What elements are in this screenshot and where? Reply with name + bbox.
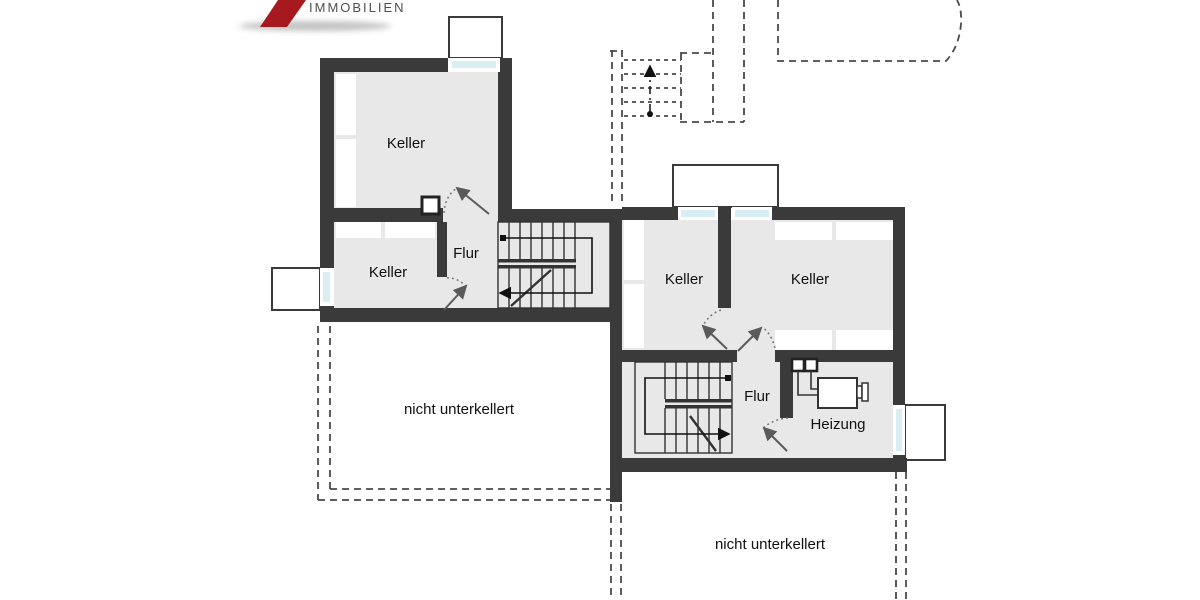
- room-label-keller-mid: Keller: [665, 271, 703, 288]
- window-east-icon: [893, 405, 905, 455]
- room-label-keller-east: Keller: [791, 271, 829, 288]
- exterior-staircase-dashed-icon: [624, 60, 681, 117]
- room-label-heizung: Heizung: [810, 416, 865, 433]
- room-label-flur-west: Flur: [453, 245, 479, 262]
- window-north-east-left-icon: [678, 207, 718, 220]
- light-well-east: [905, 405, 945, 460]
- window-west-icon: [320, 268, 334, 306]
- floorplan-svg: IMMOBILIEN: [0, 0, 1200, 600]
- room-label-flur-east: Flur: [744, 388, 770, 405]
- chimney-icon: [422, 197, 439, 214]
- brand-logo: IMMOBILIEN: [239, 0, 406, 31]
- door-gap-fill: [443, 208, 498, 222]
- light-well-west: [272, 268, 320, 310]
- floorplan-page: IMMOBILIEN: [0, 0, 1200, 600]
- area-label-no-basement-right: nicht unterkellert: [715, 536, 826, 553]
- light-well-north-west: [449, 17, 502, 58]
- area-label-no-basement-left: nicht unterkellert: [404, 401, 515, 418]
- room-label-keller-nw: Keller: [387, 135, 425, 152]
- logo-brand-text: IMMOBILIEN: [309, 0, 406, 15]
- window-north-east-right-icon: [732, 207, 772, 220]
- window-north-west-icon: [448, 58, 500, 72]
- light-well-north-east: [673, 165, 778, 207]
- room-label-keller-sw: Keller: [369, 264, 407, 281]
